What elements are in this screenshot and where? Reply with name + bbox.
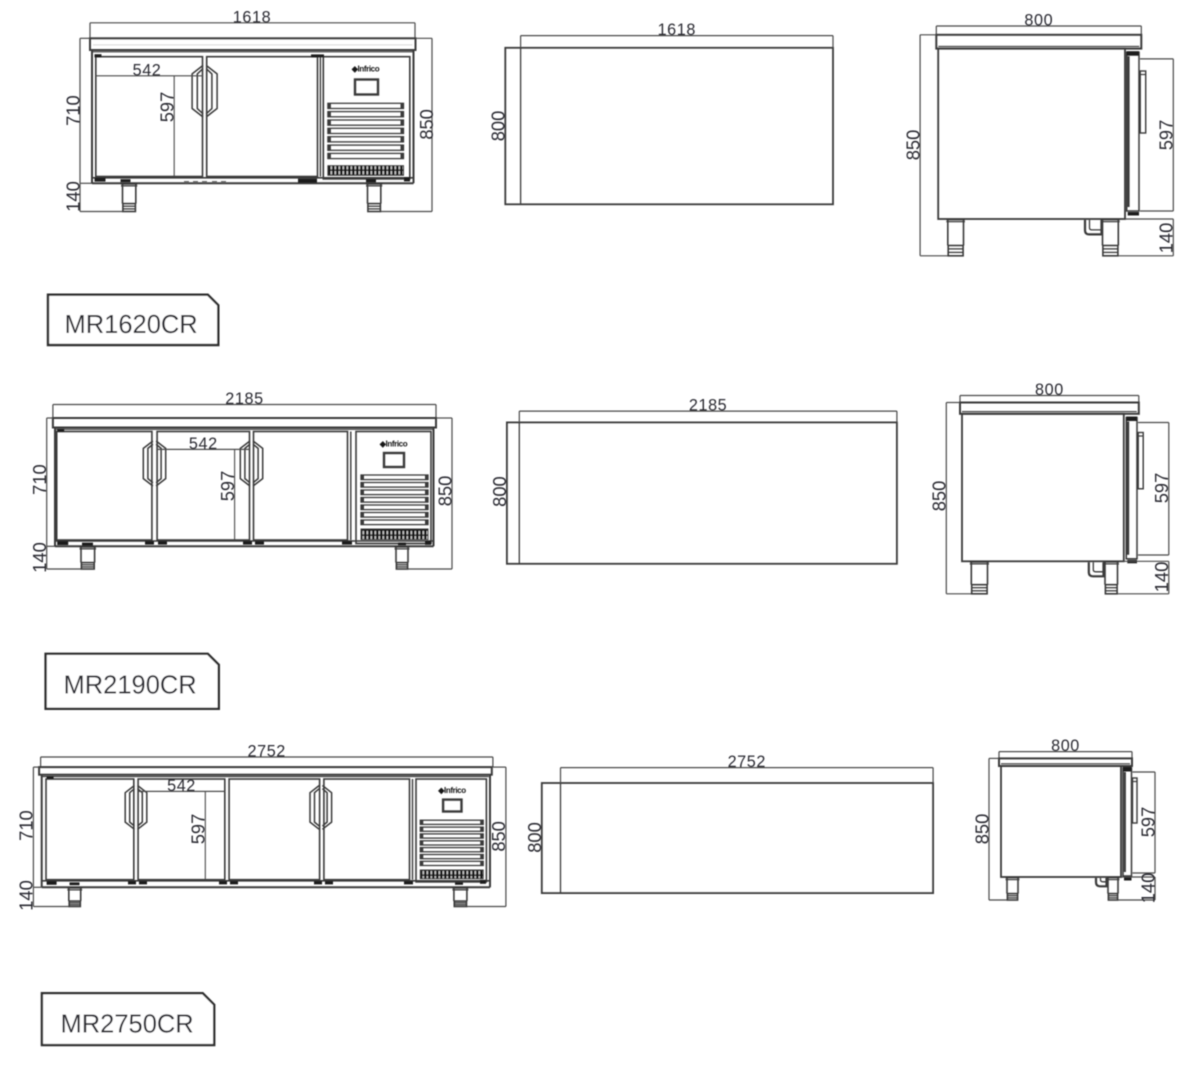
svg-text:800: 800 xyxy=(488,111,509,142)
svg-text:2185: 2185 xyxy=(689,397,727,415)
svg-text:850: 850 xyxy=(434,476,455,507)
svg-text:850: 850 xyxy=(929,481,950,512)
svg-text:597: 597 xyxy=(1151,473,1172,504)
svg-text:850: 850 xyxy=(416,109,437,140)
svg-text:800: 800 xyxy=(524,822,545,853)
svg-text:597: 597 xyxy=(217,471,238,502)
svg-text:140: 140 xyxy=(29,542,50,573)
svg-text:MR2750CR: MR2750CR xyxy=(61,1011,194,1039)
svg-text:597: 597 xyxy=(156,92,177,123)
svg-text:542: 542 xyxy=(167,777,196,795)
svg-text:MR2190CR: MR2190CR xyxy=(64,672,197,700)
svg-text:140: 140 xyxy=(1156,223,1177,254)
svg-text:597: 597 xyxy=(188,814,209,845)
svg-text:800: 800 xyxy=(1024,12,1053,30)
svg-text:MR1620CR: MR1620CR xyxy=(65,311,198,339)
svg-text:140: 140 xyxy=(16,880,37,911)
svg-text:597: 597 xyxy=(1156,120,1177,151)
svg-text:140: 140 xyxy=(1137,873,1158,904)
svg-text:850: 850 xyxy=(971,814,992,845)
svg-text:710: 710 xyxy=(62,95,83,126)
svg-text:◆Infrico: ◆Infrico xyxy=(437,786,466,795)
svg-text:1618: 1618 xyxy=(658,21,696,39)
svg-text:140: 140 xyxy=(62,181,83,212)
svg-text:2752: 2752 xyxy=(247,743,285,761)
svg-text:542: 542 xyxy=(189,435,218,453)
svg-text:2185: 2185 xyxy=(225,390,263,408)
svg-text:800: 800 xyxy=(1051,737,1080,755)
svg-text:542: 542 xyxy=(133,61,162,79)
svg-text:140: 140 xyxy=(1151,562,1172,593)
svg-text:710: 710 xyxy=(29,464,50,495)
svg-text:◆Infrico: ◆Infrico xyxy=(379,440,408,449)
svg-text:800: 800 xyxy=(489,476,510,507)
svg-text:710: 710 xyxy=(16,810,37,841)
svg-text:850: 850 xyxy=(902,130,923,161)
svg-text:597: 597 xyxy=(1137,807,1158,838)
svg-text:1618: 1618 xyxy=(233,8,271,26)
svg-text:850: 850 xyxy=(488,821,509,852)
svg-text:2752: 2752 xyxy=(728,753,766,771)
svg-text:◆Infrico: ◆Infrico xyxy=(351,65,380,74)
svg-text:800: 800 xyxy=(1035,381,1064,399)
